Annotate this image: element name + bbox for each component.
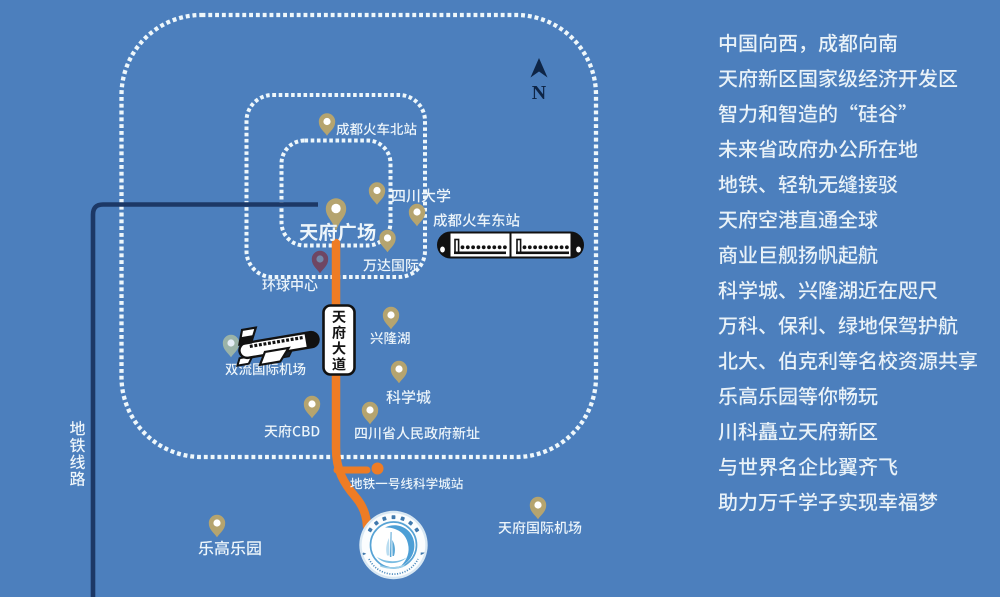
svg-text:N: N [532,82,547,104]
